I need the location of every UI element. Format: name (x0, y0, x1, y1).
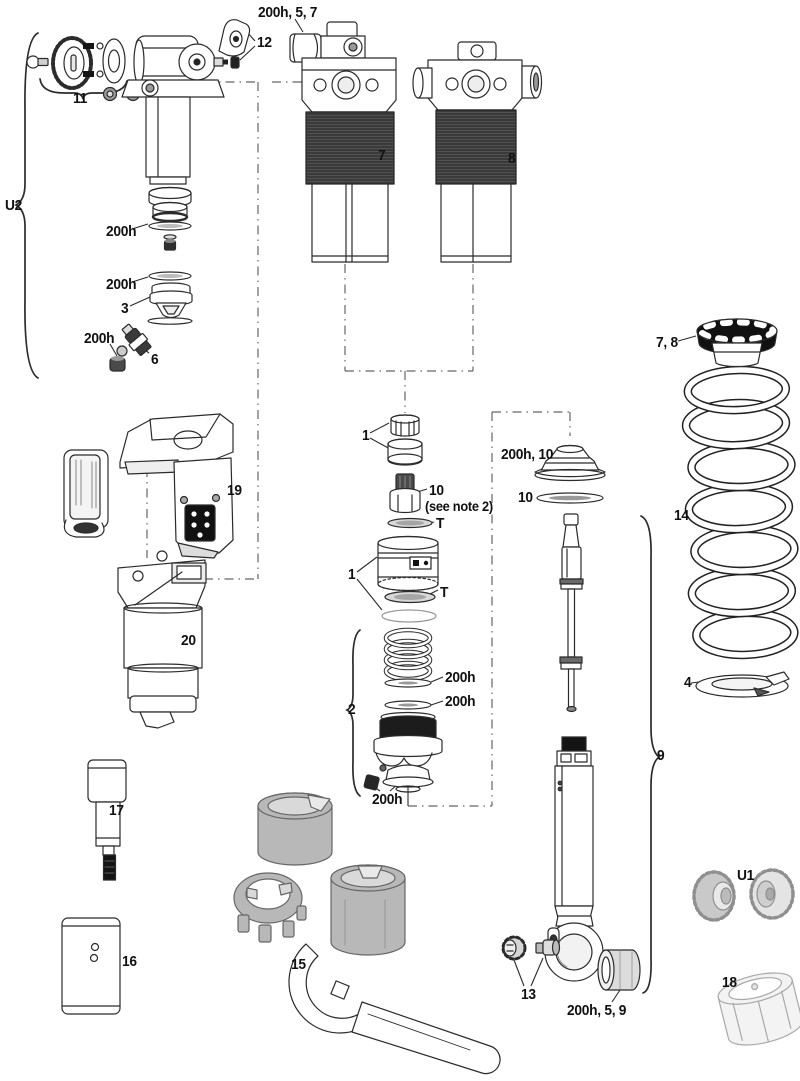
label-u2: U2 (5, 198, 22, 214)
label-t-a: T (436, 516, 444, 532)
label-see-note-2: (see note 2) (425, 499, 493, 514)
label-top-bumper: 200h, 5, 7 (258, 5, 317, 21)
part-17-tool (88, 760, 126, 880)
label-200h-d: 200h (445, 670, 475, 686)
part-78-preload-collar (697, 319, 777, 367)
part-16-block (62, 918, 120, 1014)
label-200h-f: 200h (372, 792, 402, 808)
label-6: 6 (151, 352, 158, 368)
label-10-b: 10 (518, 490, 533, 506)
part-19-control-module (120, 414, 233, 558)
part-2-rebound-group (364, 630, 442, 792)
part-t-ring-upper (388, 519, 432, 528)
diagram-artwork (0, 0, 800, 1081)
label-10-a: 10 (429, 483, 444, 499)
label-14: 14 (674, 508, 689, 524)
label-u1: U1 (737, 868, 754, 884)
label-200h-e: 200h (445, 694, 475, 710)
label-2: 2 (348, 702, 355, 718)
part-7-shock-absorber (302, 22, 396, 262)
label-200h-10: 200h, 10 (501, 447, 553, 463)
part-seals-200h-left (149, 188, 191, 281)
part-200h59-bushing (598, 950, 640, 990)
part-15-wrench (289, 944, 500, 1074)
part-9-damper-shaft (560, 514, 583, 712)
label-200h-b: 200h (106, 277, 136, 293)
label-3: 3 (121, 301, 128, 317)
part-10-ring (537, 493, 603, 503)
label-11: 11 (73, 91, 87, 107)
part-remote-damper-unit (122, 36, 228, 184)
part-1-topcap-group (388, 415, 422, 465)
label-200h-a: 200h (106, 224, 136, 240)
label-15: 15 (291, 957, 306, 973)
label-1-b: 1 (348, 567, 355, 583)
part-15-tools-group (234, 793, 405, 955)
label-13: 13 (521, 987, 536, 1003)
label-200h-c: 200h (84, 331, 114, 347)
label-7: 7 (378, 148, 385, 164)
label-200h-5-9: 200h, 5, 9 (567, 1003, 626, 1019)
label-20: 20 (181, 633, 196, 649)
label-7-8: 7, 8 (656, 335, 678, 351)
label-17: 17 (109, 803, 124, 819)
part-1-piston-can (378, 537, 438, 591)
label-12: 12 (257, 35, 272, 51)
part-19-battery (64, 450, 108, 537)
label-8: 8 (508, 151, 515, 167)
part-3-cap (148, 283, 192, 324)
label-1-a: 1 (362, 428, 369, 444)
label-19: 19 (227, 483, 242, 499)
label-18: 18 (722, 975, 737, 991)
part-10-fitting (390, 474, 420, 513)
part-8-shock-absorber (413, 42, 542, 262)
part-14-coil-spring (684, 368, 798, 656)
label-4: 4 (684, 675, 691, 691)
part-4-spring-seat (696, 672, 789, 697)
part-6-valve (110, 321, 153, 371)
part-t-ring-lower (382, 592, 436, 623)
label-t-b: T (440, 585, 448, 601)
exploded-parts-diagram: 200h, 5, 7 12 11 U2 200h 200h 3 200h 6 7… (0, 0, 800, 1081)
label-16: 16 (122, 954, 137, 970)
label-9: 9 (657, 748, 664, 764)
